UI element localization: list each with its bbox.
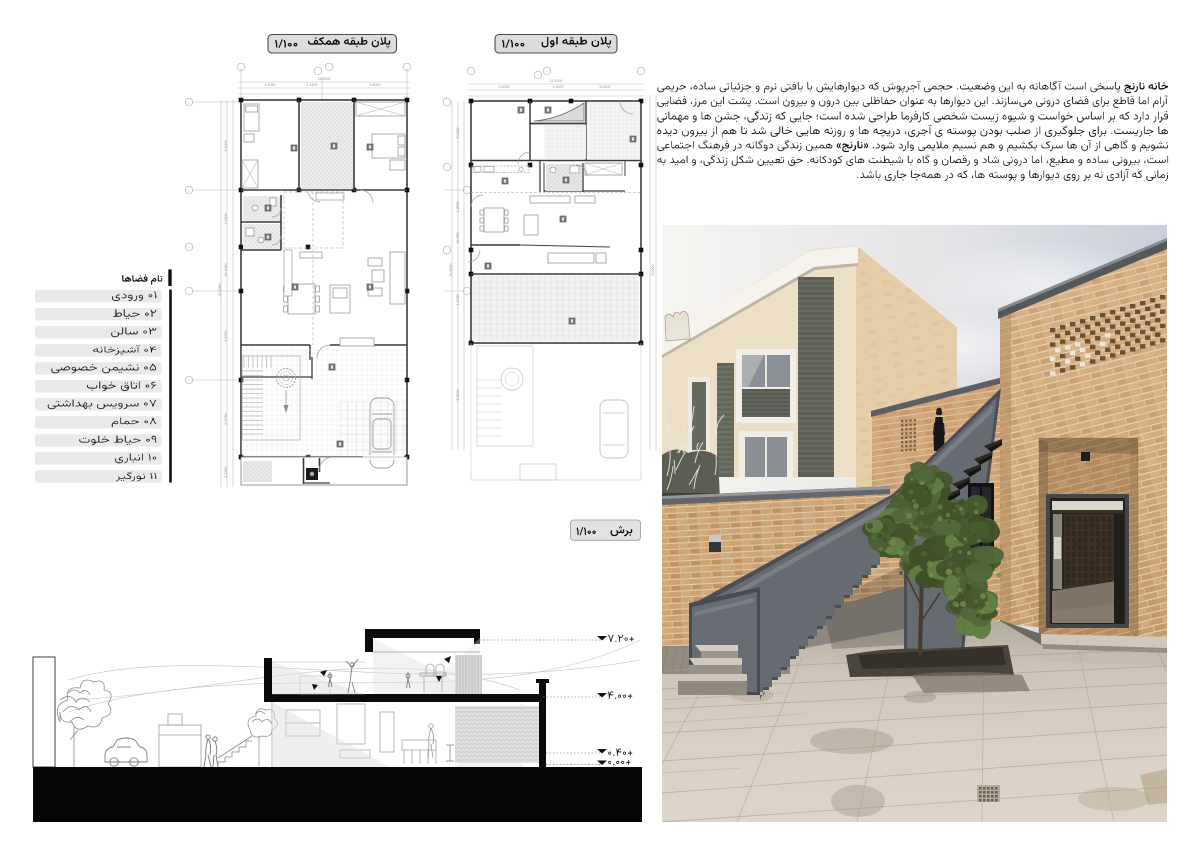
svg-text:3.4000: 3.4000: [499, 85, 510, 89]
svg-text:16.750: 16.750: [456, 233, 460, 244]
svg-text:3.2900: 3.2900: [224, 214, 228, 225]
svg-text:5.6000: 5.6000: [370, 83, 381, 87]
svg-text:10.1000: 10.1000: [224, 264, 228, 277]
svg-text:4.2050: 4.2050: [265, 83, 276, 87]
svg-text:5.6000: 5.6000: [600, 85, 611, 89]
svg-text:5.1000: 5.1000: [224, 141, 228, 152]
svg-text:5.0000: 5.0000: [456, 390, 460, 401]
svg-text:11.0000: 11.0000: [550, 79, 563, 83]
svg-text:6.3750: 6.3750: [224, 414, 228, 425]
svg-text:3.2500: 3.2500: [456, 202, 460, 213]
svg-text:1.4400: 1.4400: [307, 83, 318, 87]
svg-text:5.2000: 5.2000: [456, 128, 460, 139]
svg-text:8.0000: 8.0000: [651, 265, 655, 276]
svg-text:14.5000: 14.5000: [449, 264, 453, 277]
svg-text:2.4400: 2.4400: [553, 85, 564, 89]
svg-text:20.3000: 20.3000: [218, 284, 222, 297]
svg-text:2.2300: 2.2300: [224, 467, 228, 478]
svg-text:11.0000: 11.0000: [318, 77, 331, 81]
svg-text:4.1700: 4.1700: [456, 295, 460, 306]
svg-text:5.6700: 5.6700: [224, 331, 228, 342]
